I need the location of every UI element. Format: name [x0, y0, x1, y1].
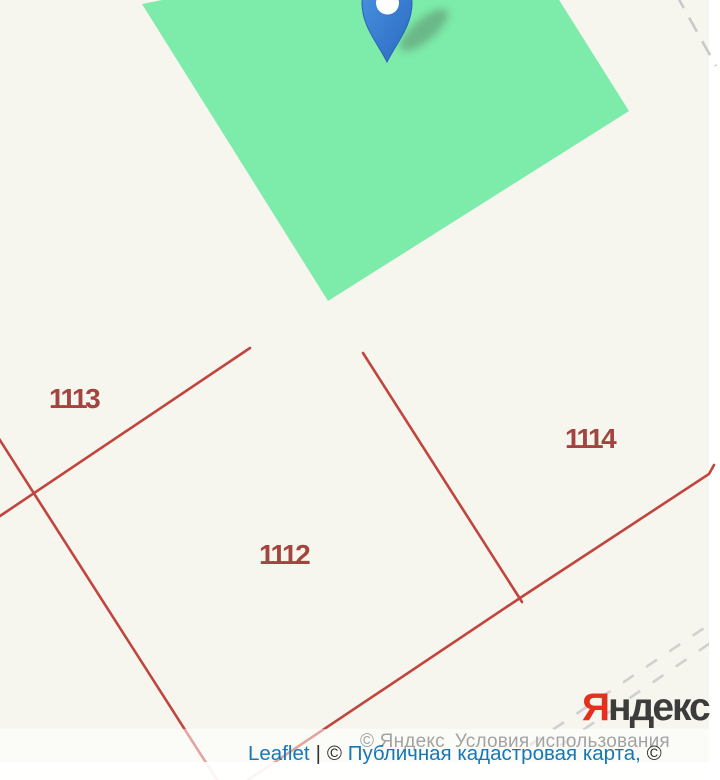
pkk-link[interactable]: Публичная кадастровая карта,	[348, 742, 641, 765]
pkk-copyright-symbol: ©	[327, 742, 342, 765]
attribution-separator: |	[316, 742, 321, 765]
leaflet-link[interactable]: Leaflet	[248, 742, 310, 765]
parcel-boundary-line	[0, 348, 250, 516]
yandex-logo[interactable]: Яндекс	[582, 686, 709, 730]
trailing-copyright-symbol: ©	[647, 742, 662, 765]
leaflet-attribution-bar: Leaflet|© Публичная кадастровая карта, ©	[248, 742, 662, 766]
map-canvas[interactable]: 1113 1112 1114 Яндекс © ЯндексУсловия ис…	[0, 0, 720, 780]
parcel-label-1112: 1112	[259, 539, 308, 571]
yandex-logo-first-letter: Я	[582, 686, 608, 729]
parcel-label-1114: 1114	[565, 423, 614, 455]
tile-gap	[709, 0, 720, 780]
map-vector-layer	[0, 0, 720, 780]
parcel-label-1113: 1113	[49, 383, 98, 415]
yandex-logo-rest: ндекс	[608, 686, 709, 729]
parcel-boundary-line	[363, 353, 522, 602]
